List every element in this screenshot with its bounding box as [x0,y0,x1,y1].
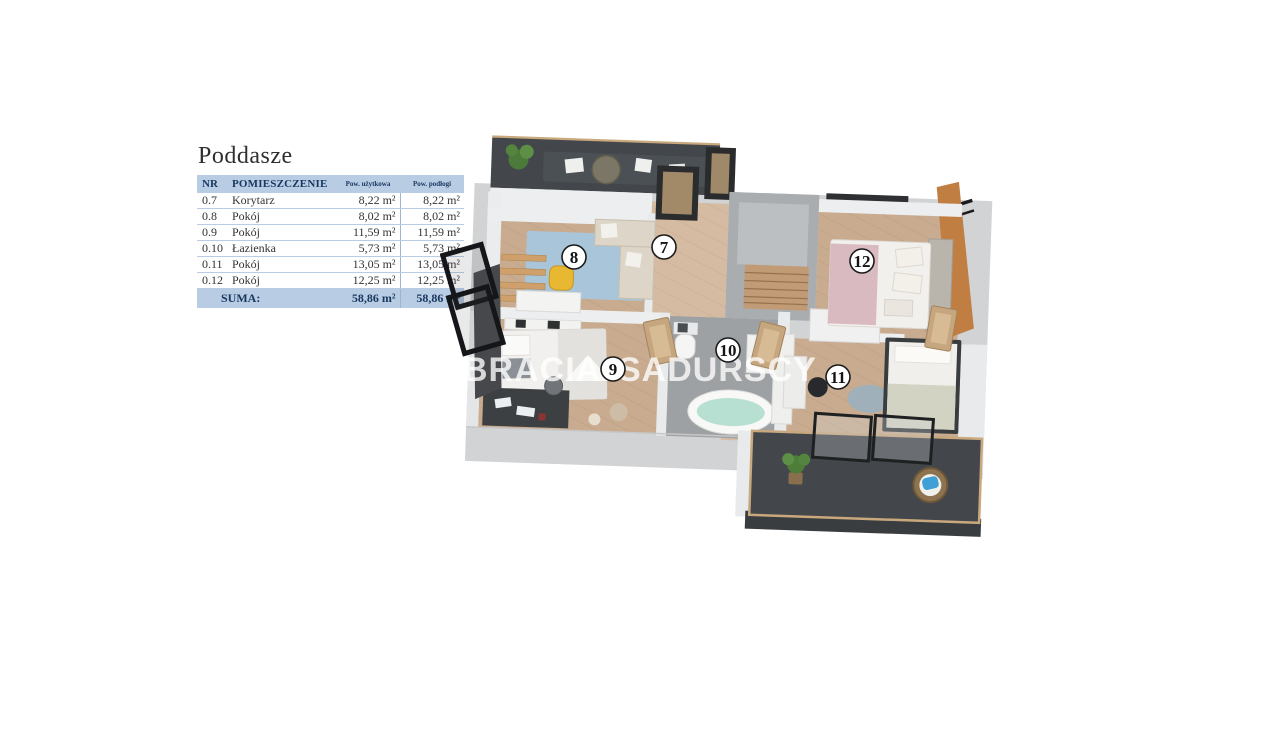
room-name-cell: Pokój [232,209,336,225]
svg-text:11: 11 [830,368,846,387]
table-header-row: NR POMIESZCZENIE Pow. użytkowa Pow. podł… [197,175,464,193]
room-number-cell: 0.7 [197,193,232,209]
table-row: 0.9 Pokój 11,59 m² 11,59 m² [197,225,464,241]
header-nr: NR [197,175,232,193]
table-row: 0.11 Pokój 13,05 m² 13,05 m² [197,257,464,273]
header-room: POMIESZCZENIE [232,175,336,193]
room-number-cell: 0.9 [197,225,232,241]
room-name-cell: Łazienka [232,241,336,257]
basket-chair [913,468,948,503]
pillow [895,247,923,268]
speaker-icon [516,320,526,328]
table-row: 0.7 Korytarz 8,22 m² 8,22 m² [197,193,464,209]
sofa-pillow [601,223,618,238]
usable-area-cell: 8,22 m² [336,193,400,209]
page-title: Poddasze [198,143,449,170]
summary-row: SUMA: 58,86 m² 58,86 m² [197,289,464,309]
table-row: 0.12 Pokój 12,25 m² 12,25 m² [197,273,464,289]
room-number-cell: 0.8 [197,209,232,225]
floor-plan-rendering: BRACIA SADURSCY 7 8 9 10 11 12 [440,128,1020,560]
table-row: 0.8 Pokój 8,02 m² 8,02 m² [197,209,464,225]
desk-chair-yellow [549,266,574,291]
outdoor-round-table [592,155,621,184]
toilet-lid-item [678,323,688,332]
svg-text:10: 10 [720,341,737,360]
room-number-cell: 0.10 [197,241,232,257]
stairwell [725,192,819,321]
pillow [884,299,913,316]
watermark: BRACIA SADURSCY [463,351,817,389]
floor-plan-page: Poddasze NR POMIESZCZENIE Pow. użytkowa … [0,0,1262,735]
speaker-icon [548,321,560,329]
room-name-cell: Pokój [232,273,336,289]
usable-area-cell: 12,25 m² [336,273,400,289]
usable-area-cell: 8,02 m² [336,209,400,225]
room-badge-9: 9 [601,357,625,381]
mug [538,413,545,420]
area-table-panel: Poddasze NR POMIESZCZENIE Pow. użytkowa … [197,143,449,308]
room-name-cell: Pokój [232,225,336,241]
room-badge-7: 7 [652,235,676,259]
outdoor-cushion [565,158,584,174]
usable-area-cell: 13,05 m² [336,257,400,273]
summary-label: SUMA: [197,289,336,309]
room-number-cell: 0.11 [197,257,232,273]
table-row: 0.10 Łazienka 5,73 m² 5,73 m² [197,241,464,257]
svg-text:12: 12 [854,252,871,271]
sofa-pillow [625,252,642,268]
usable-area-cell: 11,59 m² [336,225,400,241]
apartment-body [440,135,994,537]
summary-usable-cell: 58,86 m² [336,289,400,309]
usable-area-cell: 5,73 m² [336,241,400,257]
room-badge-8: 8 [562,245,586,269]
room-badge-11: 11 [826,365,850,389]
room-name-cell: Korytarz [232,193,336,209]
desk [516,291,581,313]
svg-text:9: 9 [609,360,618,379]
room-badge-12: 12 [850,249,874,273]
room-badge-10: 10 [716,338,740,362]
header-usable-area: Pow. użytkowa [336,175,400,193]
room-number-cell: 0.12 [197,273,232,289]
stairwell-wall [737,202,809,266]
area-table: NR POMIESZCZENIE Pow. użytkowa Pow. podł… [197,175,464,308]
svg-text:8: 8 [570,248,579,267]
outdoor-cushion [634,158,652,173]
corridor-top-door [655,165,699,220]
pillow [892,273,922,294]
svg-text:7: 7 [660,238,669,257]
room-name-cell: Pokój [232,257,336,273]
